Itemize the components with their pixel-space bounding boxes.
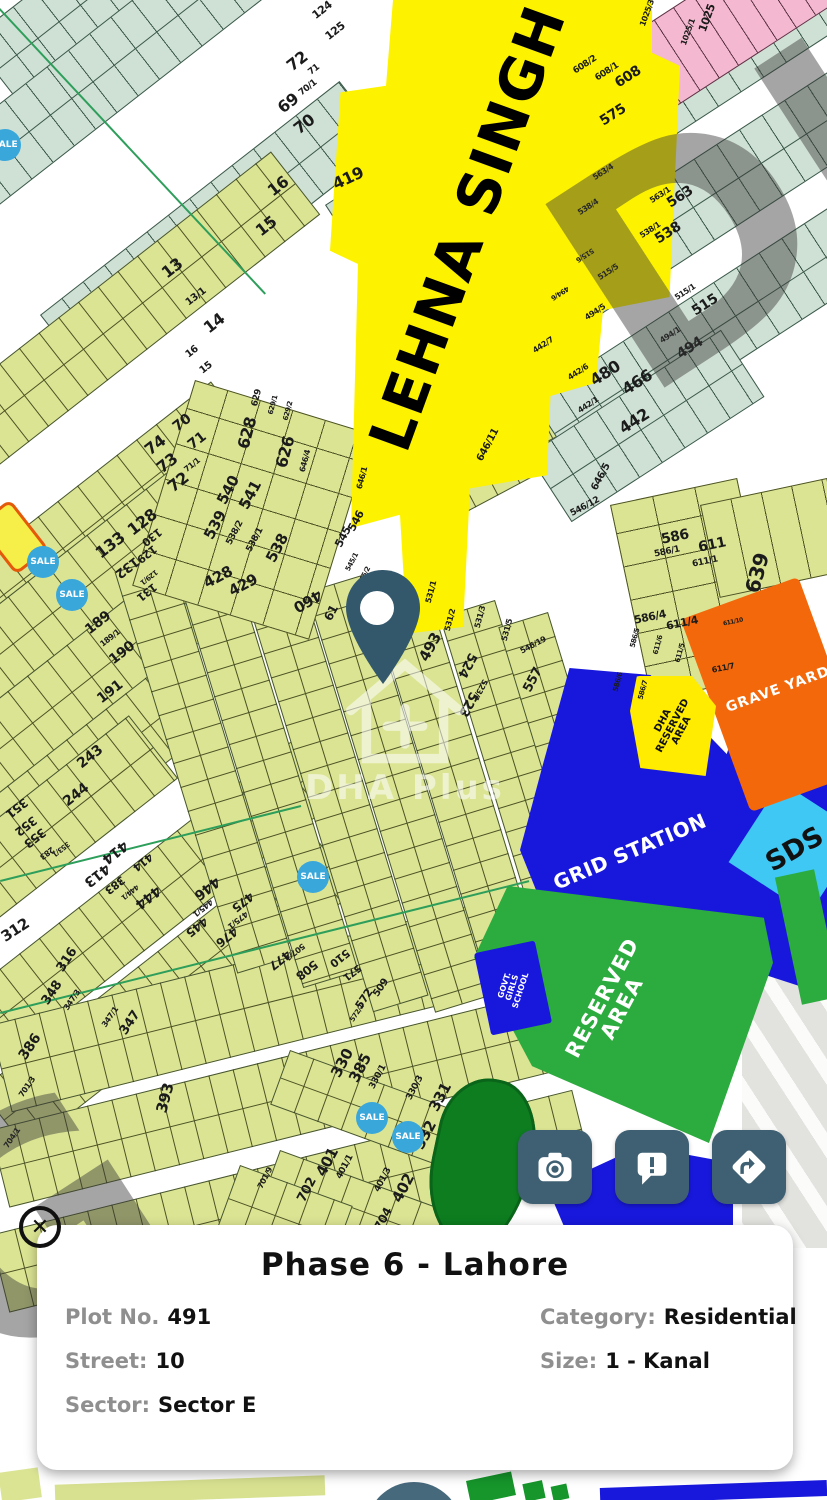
map-fragment bbox=[600, 1480, 827, 1500]
plot-no-field: Plot No.491 bbox=[65, 1305, 211, 1329]
map-fragment bbox=[522, 1480, 545, 1500]
plot-number-label: 15 bbox=[198, 360, 215, 377]
map-fragment bbox=[0, 1467, 42, 1500]
category-field: Category:Residential bbox=[540, 1305, 797, 1329]
plot-number-label: 16 bbox=[184, 344, 201, 361]
map-canvas[interactable]: LEHNA SINGH GRID STATION SDS GRAVE YARD … bbox=[0, 0, 827, 1500]
directions-button[interactable] bbox=[712, 1130, 786, 1204]
plot-number-label: 312 bbox=[0, 914, 32, 945]
size-field: Size:1 - Kanal bbox=[540, 1349, 710, 1373]
sector-field: Sector:Sector E bbox=[65, 1393, 256, 1417]
camera-icon bbox=[533, 1145, 577, 1189]
plot-number-label: 125 bbox=[323, 19, 348, 42]
map-fragment bbox=[551, 1484, 570, 1500]
camera-button[interactable] bbox=[518, 1130, 592, 1204]
plot-number-label: 14 bbox=[200, 309, 228, 337]
map-fragment bbox=[55, 1475, 326, 1500]
sale-badge[interactable]: SALE bbox=[297, 861, 329, 893]
sale-badge[interactable]: SALE bbox=[392, 1121, 424, 1153]
alert-bubble-icon bbox=[630, 1145, 674, 1189]
street-field: Street:10 bbox=[65, 1349, 185, 1373]
plot-number-label: 124 bbox=[310, 0, 335, 22]
sale-badge[interactable]: SALE bbox=[356, 1102, 388, 1134]
map-fragment bbox=[466, 1471, 516, 1500]
plot-number-label: 71 bbox=[306, 63, 321, 78]
diamond-arrow-icon bbox=[726, 1144, 772, 1190]
close-card-button[interactable]: ✕ bbox=[19, 1206, 61, 1248]
floating-action-button[interactable] bbox=[366, 1482, 462, 1500]
sale-badge[interactable]: SALE bbox=[56, 579, 88, 611]
sale-badge[interactable]: SALE bbox=[27, 546, 59, 578]
card-title: Phase 6 - Lahore bbox=[37, 1247, 793, 1283]
feedback-button[interactable] bbox=[615, 1130, 689, 1204]
plot-number-label: 70/1 bbox=[297, 78, 319, 98]
plot-info-card: Phase 6 - Lahore Plot No.491 Street:10 S… bbox=[37, 1225, 793, 1470]
location-pin[interactable] bbox=[343, 568, 423, 686]
